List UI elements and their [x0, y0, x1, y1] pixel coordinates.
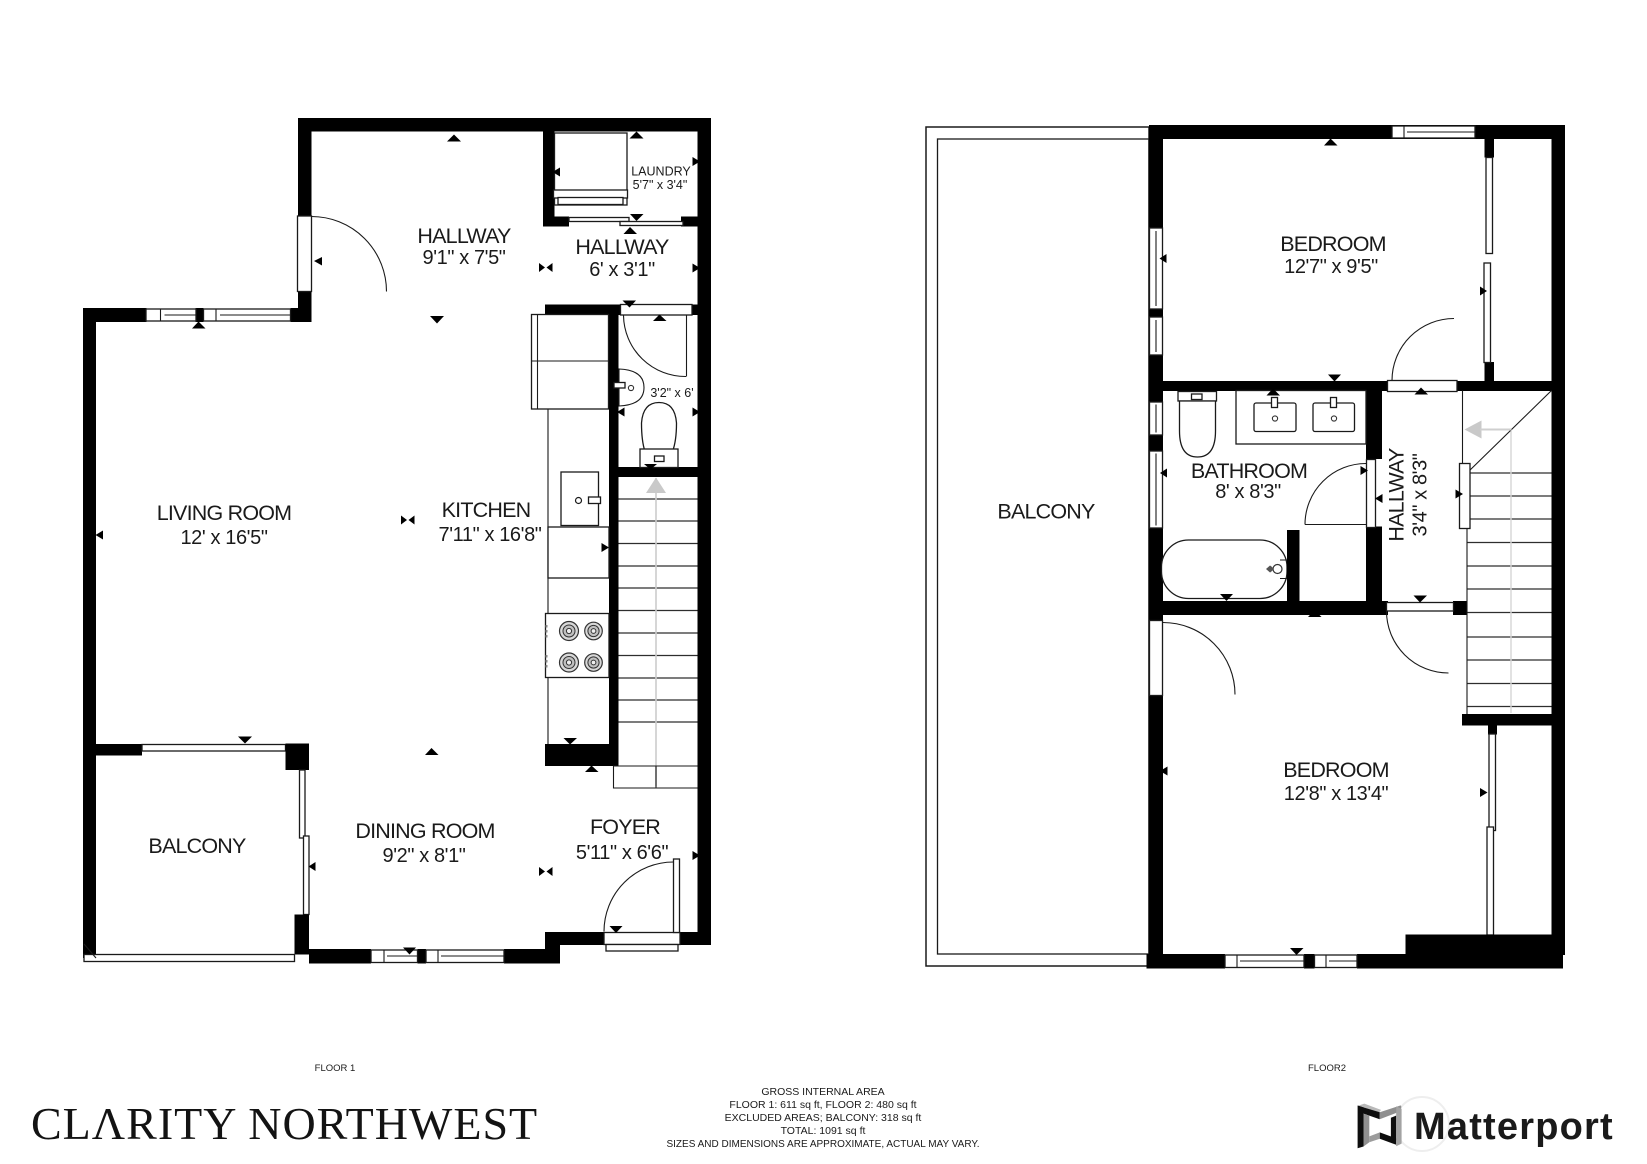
svg-text:FOYER: FOYER: [590, 815, 660, 839]
svg-text:HALLWAY: HALLWAY: [1385, 448, 1409, 542]
svg-text:BALCONY: BALCONY: [997, 500, 1095, 524]
svg-text:12'7" x 9'5": 12'7" x 9'5": [1284, 256, 1378, 278]
svg-text:SIZES AND DIMENSIONS ARE APPRO: SIZES AND DIMENSIONS ARE APPROXIMATE, AC…: [666, 1139, 979, 1150]
svg-text:BEDROOM: BEDROOM: [1280, 232, 1386, 256]
svg-text:5'11" x 6'6": 5'11" x 6'6": [576, 842, 669, 864]
svg-text:FLOOR2: FLOOR2: [1308, 1063, 1346, 1074]
svg-text:FLOOR 1: FLOOR 1: [315, 1063, 356, 1074]
svg-text:FLOOR 1: 611 sq ft, FLOOR 2: 4: FLOOR 1: 611 sq ft, FLOOR 2: 480 sq ft: [729, 1099, 916, 1111]
svg-text:7'11" x 16'8": 7'11" x 16'8": [438, 524, 541, 546]
svg-text:BEDROOM: BEDROOM: [1283, 758, 1389, 782]
svg-text:6' x 3'1": 6' x 3'1": [589, 259, 655, 281]
svg-text:EXCLUDED AREAS; BALCONY: 318 s: EXCLUDED AREAS; BALCONY: 318 sq ft: [725, 1112, 922, 1124]
svg-text:3'4" x 8'3": 3'4" x 8'3": [1410, 453, 1432, 536]
svg-text:9'1" x 7'5": 9'1" x 7'5": [422, 247, 505, 269]
svg-text:TOTAL: 1091 sq ft: TOTAL: 1091 sq ft: [781, 1125, 866, 1137]
svg-text:HALLWAY: HALLWAY: [575, 235, 669, 259]
svg-text:LAUNDRY: LAUNDRY: [631, 165, 691, 179]
svg-text:KITCHEN: KITCHEN: [442, 498, 531, 522]
svg-text:BALCONY: BALCONY: [148, 834, 246, 858]
svg-text:3'2" x 6': 3'2" x 6': [650, 386, 693, 400]
svg-text:9'2" x 8'1": 9'2" x 8'1": [382, 845, 465, 867]
svg-text:DINING ROOM: DINING ROOM: [355, 819, 494, 843]
svg-text:12'8" x 13'4": 12'8" x 13'4": [1284, 783, 1389, 805]
svg-text:12' x 16'5": 12' x 16'5": [180, 527, 267, 549]
svg-text:BATHROOM: BATHROOM: [1191, 459, 1307, 483]
svg-text:GROSS INTERNAL AREA: GROSS INTERNAL AREA: [761, 1086, 884, 1098]
svg-text:CLΛRITY NORTHWEST: CLΛRITY NORTHWEST: [31, 1098, 538, 1149]
svg-text:LIVING ROOM: LIVING ROOM: [157, 501, 292, 525]
svg-text:HALLWAY: HALLWAY: [417, 224, 511, 248]
svg-text:5'7" x 3'4": 5'7" x 3'4": [633, 178, 688, 192]
svg-text:Matterport: Matterport: [1414, 1106, 1614, 1148]
svg-text:8' x 8'3": 8' x 8'3": [1215, 481, 1281, 503]
